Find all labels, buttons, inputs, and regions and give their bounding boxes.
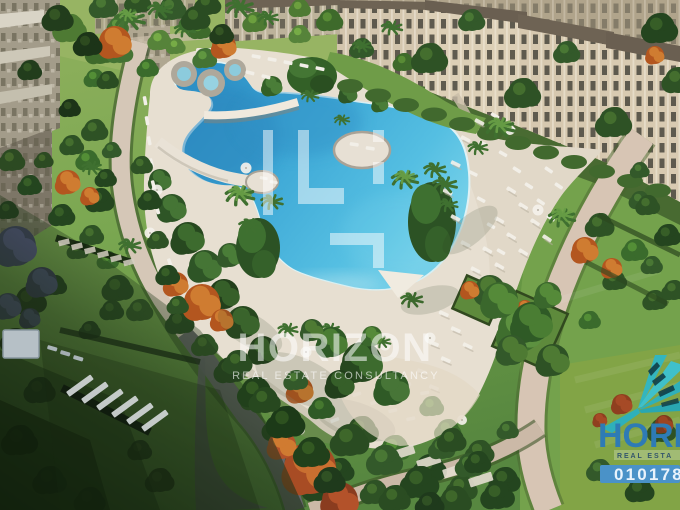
- svg-text:010178: 010178: [614, 465, 680, 484]
- svg-text:HORIZ: HORIZ: [598, 417, 680, 455]
- svg-text:REAL ESTATE CONSULTANCY: REAL ESTATE CONSULTANCY: [232, 370, 440, 382]
- svg-text:REAL ESTA: REAL ESTA: [617, 453, 673, 460]
- svg-text:HORIZON: HORIZON: [238, 326, 433, 370]
